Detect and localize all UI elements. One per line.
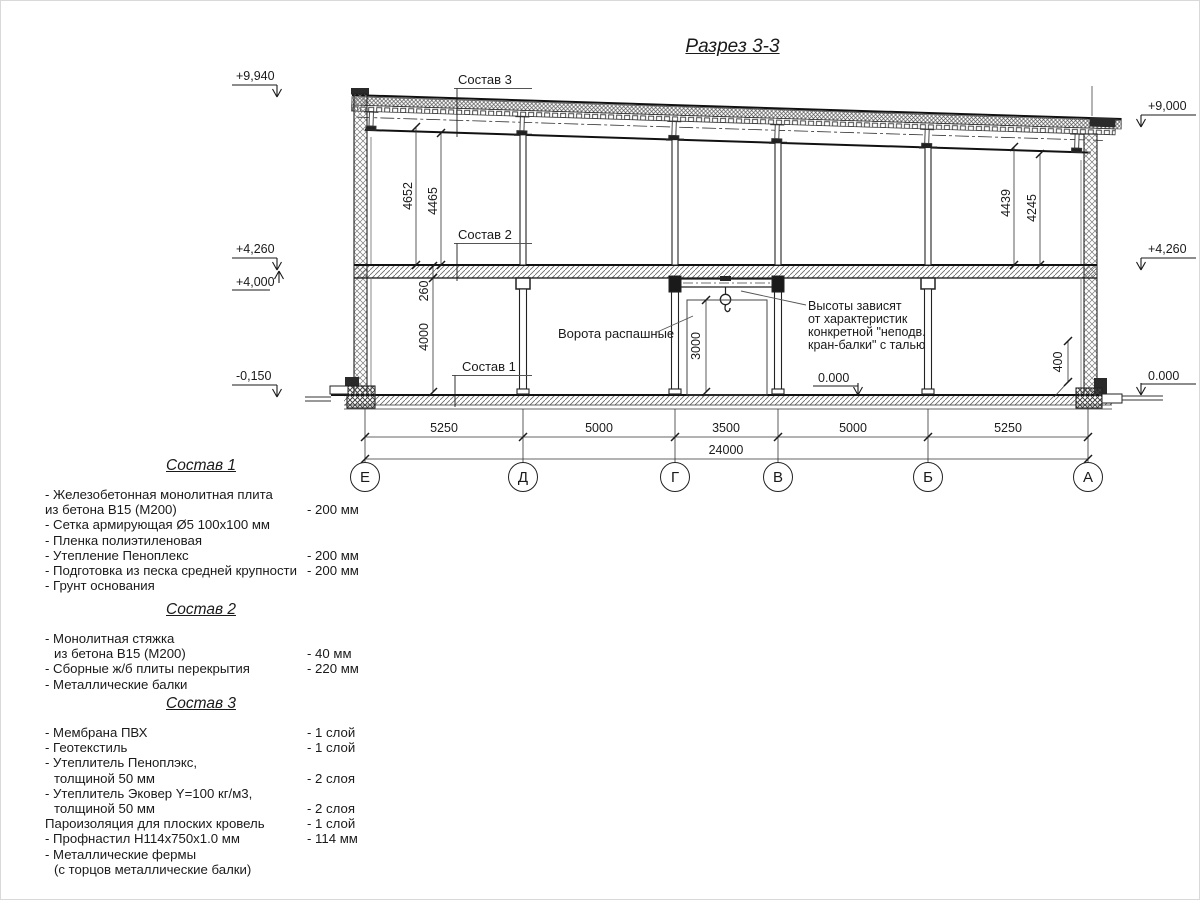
svg-text:кран-балки" с талью: кран-балки" с талью	[808, 338, 925, 352]
list-item: - Монолитная стяжка	[45, 631, 357, 646]
composition-2-heading: Состав 2	[45, 601, 357, 619]
elevation-bottom-left: -0,150	[232, 369, 282, 397]
dim-label: 4652	[401, 182, 415, 210]
truss-bottom-chord	[365, 130, 1091, 153]
hook-icon	[725, 305, 730, 312]
dim-label: 5250	[430, 421, 458, 435]
dim-label: 5000	[585, 421, 613, 435]
svg-text:+4,000: +4,000	[236, 275, 275, 289]
dim-label: 3500	[712, 421, 740, 435]
list-item: толщиной 50 мм- 2 слоя	[45, 771, 357, 786]
svg-text:+9,940: +9,940	[236, 69, 275, 83]
svg-text:конкретной "неподв.: конкретной "неподв.	[808, 325, 926, 339]
dim-label: 5000	[839, 421, 867, 435]
list-item: - Металлические балки	[45, 677, 357, 692]
list-item: - Профнастил Н114х750х1.0 мм- 114 мм	[45, 831, 357, 846]
dim-label: 4439	[999, 189, 1013, 217]
list-item: Пароизоляция для плоских кровель- 1 слой	[45, 816, 357, 831]
dimension-ticks	[361, 123, 1092, 463]
dim-label: 400	[1051, 352, 1065, 373]
crane-beam	[681, 276, 772, 312]
list-item: - Железобетонная монолитная плита	[45, 487, 357, 502]
composition-3-heading: Состав 3	[45, 695, 357, 713]
svg-text:0.000: 0.000	[1148, 369, 1179, 383]
list-item: - Грунт основания	[45, 578, 357, 593]
composition-1-heading: Состав 1	[45, 457, 357, 475]
dim-label: 4465	[426, 187, 440, 215]
list-item: - Металлические фермы	[45, 847, 357, 862]
elevation-bottom-mid: 0.000	[813, 371, 863, 395]
roof-assembly	[351, 94, 1122, 153]
axis-label: Г	[671, 469, 679, 486]
list-item: - Геотекстиль- 1 слой	[45, 740, 357, 755]
list-item: - Подготовка из песка средней крупности-…	[45, 563, 357, 578]
axis-label: Е	[360, 469, 370, 486]
list-item: из бетона В15 (М200)- 200 мм	[45, 502, 357, 517]
elevation-top-left: +9,940	[232, 69, 282, 97]
svg-text:от характеристик: от характеристик	[808, 312, 908, 326]
composition-2: Состав 2 - Монолитная стяжка из бетона В…	[45, 601, 357, 692]
list-item: (с торцов металлические балки)	[45, 862, 357, 877]
callout-sostav1: Состав 1	[462, 359, 516, 374]
list-item: - Пленка полиэтиленовая	[45, 533, 357, 548]
dim-label: 4000	[417, 323, 431, 351]
left-wall	[354, 94, 367, 395]
elevation-mid-right: +4,260	[1137, 242, 1197, 270]
crane-trolley	[720, 276, 731, 281]
list-item: - Утеплитель Пеноплэкс,	[45, 755, 357, 770]
callout-sostav3: Состав 3	[458, 72, 512, 87]
svg-text:-0,150: -0,150	[236, 369, 271, 383]
dim-label: 4245	[1025, 194, 1039, 222]
elevation-mid-left-upper: +4,260	[232, 242, 282, 270]
dim-label: 260	[417, 281, 431, 302]
callout-sostav2: Состав 2	[458, 227, 512, 242]
list-item: толщиной 50 мм- 2 слоя	[45, 801, 357, 816]
elevation-top-right: +9,000	[1137, 99, 1197, 127]
dim-label: 3000	[689, 332, 703, 360]
svg-text:+4,260: +4,260	[1148, 242, 1187, 256]
list-item: - Утеплитель Эковер Y=100 кг/м3,	[45, 786, 357, 801]
crane-note: Высоты зависят от характеристик конкретн…	[741, 291, 926, 352]
list-item: из бетона В15 (М200)- 40 мм	[45, 646, 357, 661]
dim-label: 5250	[994, 421, 1022, 435]
composition-1: Состав 1 - Железобетонная монолитная пли…	[45, 457, 357, 593]
drawing-sheet: Разрез 3-3	[0, 0, 1200, 900]
axis-label: Б	[923, 469, 933, 486]
axis-label: А	[1083, 469, 1093, 486]
elevation-bottom-right: 0.000	[1137, 369, 1197, 395]
axis-label: В	[773, 469, 783, 486]
roof-edge-cap	[1089, 118, 1115, 128]
list-item: - Утепление Пеноплекс- 200 мм	[45, 548, 357, 563]
list-item: - Мембрана ПВХ- 1 слой	[45, 725, 357, 740]
list-item: - Сборные ж/б плиты перекрытия- 220 мм	[45, 661, 357, 676]
list-item: - Сетка армирующая Ø5 100х100 мм	[45, 517, 357, 532]
ground-floor-slab	[331, 395, 1112, 409]
svg-text:+4,260: +4,260	[236, 242, 275, 256]
axis-label: Д	[518, 469, 528, 486]
columns-upper	[514, 135, 937, 265]
svg-text:0.000: 0.000	[818, 371, 849, 385]
axis-bubbles: Е Д Г В Б А	[351, 463, 1103, 492]
composition-3: Состав 3 - Мембрана ПВХ- 1 слой - Геотек…	[45, 695, 357, 877]
svg-text:Высоты зависят: Высоты зависят	[808, 299, 902, 313]
callout-gate: Ворота распашные	[558, 326, 674, 341]
svg-text:+9,000: +9,000	[1148, 99, 1187, 113]
dim-label: 24000	[709, 443, 744, 457]
elevation-mid-left-lower: +4,000	[232, 271, 284, 290]
